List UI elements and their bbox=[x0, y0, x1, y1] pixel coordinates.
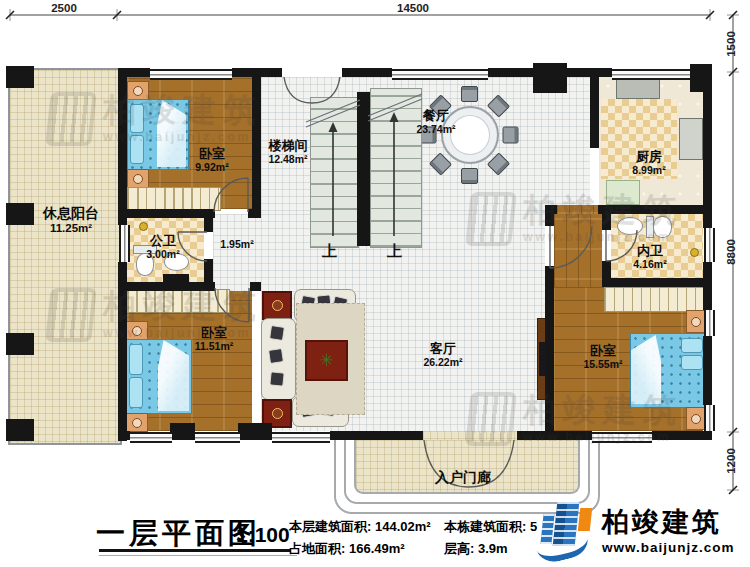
floor-plan: ✳ bbox=[0, 0, 750, 567]
label-bedroom1: 卧室 9.92m² bbox=[180, 147, 244, 173]
dim-right-1500: 1500 bbox=[725, 16, 737, 72]
label-public-bath: 公卫 3.00m² bbox=[131, 234, 195, 260]
brand-logo-icon bbox=[534, 498, 598, 562]
label-kitchen: 厨房 8.99m² bbox=[617, 150, 681, 176]
logo-building-orange bbox=[578, 508, 592, 531]
stat-story-height: 层高: 3.9m bbox=[444, 540, 508, 558]
label-bedroom3: 卧室 15.55m² bbox=[571, 344, 635, 370]
label-living: 客厅 26.22m² bbox=[411, 342, 475, 368]
title-underline-thin bbox=[99, 555, 297, 556]
dim-right-8800: 8800 bbox=[725, 224, 737, 280]
label-corridor: 1.95m² bbox=[214, 239, 260, 251]
label-dining: 餐厅 23.74m² bbox=[404, 109, 468, 135]
plan-scale: 1:100 bbox=[236, 523, 290, 547]
logo-building-main bbox=[553, 502, 580, 546]
brand-url: www.baijunjz.com bbox=[602, 540, 735, 555]
label-bedroom2: 卧室 11.51m² bbox=[182, 326, 246, 352]
stat-total-area: 本栋建筑面积: 5 bbox=[444, 518, 537, 536]
stairs-up-label: 上 bbox=[387, 242, 402, 261]
label-stairwell: 楼梯间 12.48m² bbox=[258, 139, 318, 165]
stat-floor-area: 本层建筑面积: 144.02m² bbox=[289, 518, 431, 536]
stairs-up-label: 上 bbox=[322, 242, 337, 261]
dim-right-1200: 1200 bbox=[725, 433, 737, 489]
title-underline bbox=[99, 549, 291, 552]
label-porch: 入户门廊 bbox=[408, 470, 518, 486]
brand-name: 柏竣建筑 bbox=[602, 504, 722, 540]
stat-footprint-area: 占地面积: 166.49m² bbox=[289, 540, 405, 558]
plan-linework bbox=[0, 0, 750, 567]
dim-top-main: 14500 bbox=[383, 2, 443, 14]
label-balcony: 休息阳台 11.25m² bbox=[31, 206, 111, 235]
label-private-bath: 内卫 4.16m² bbox=[618, 244, 682, 270]
dim-top-left: 2500 bbox=[34, 2, 94, 14]
